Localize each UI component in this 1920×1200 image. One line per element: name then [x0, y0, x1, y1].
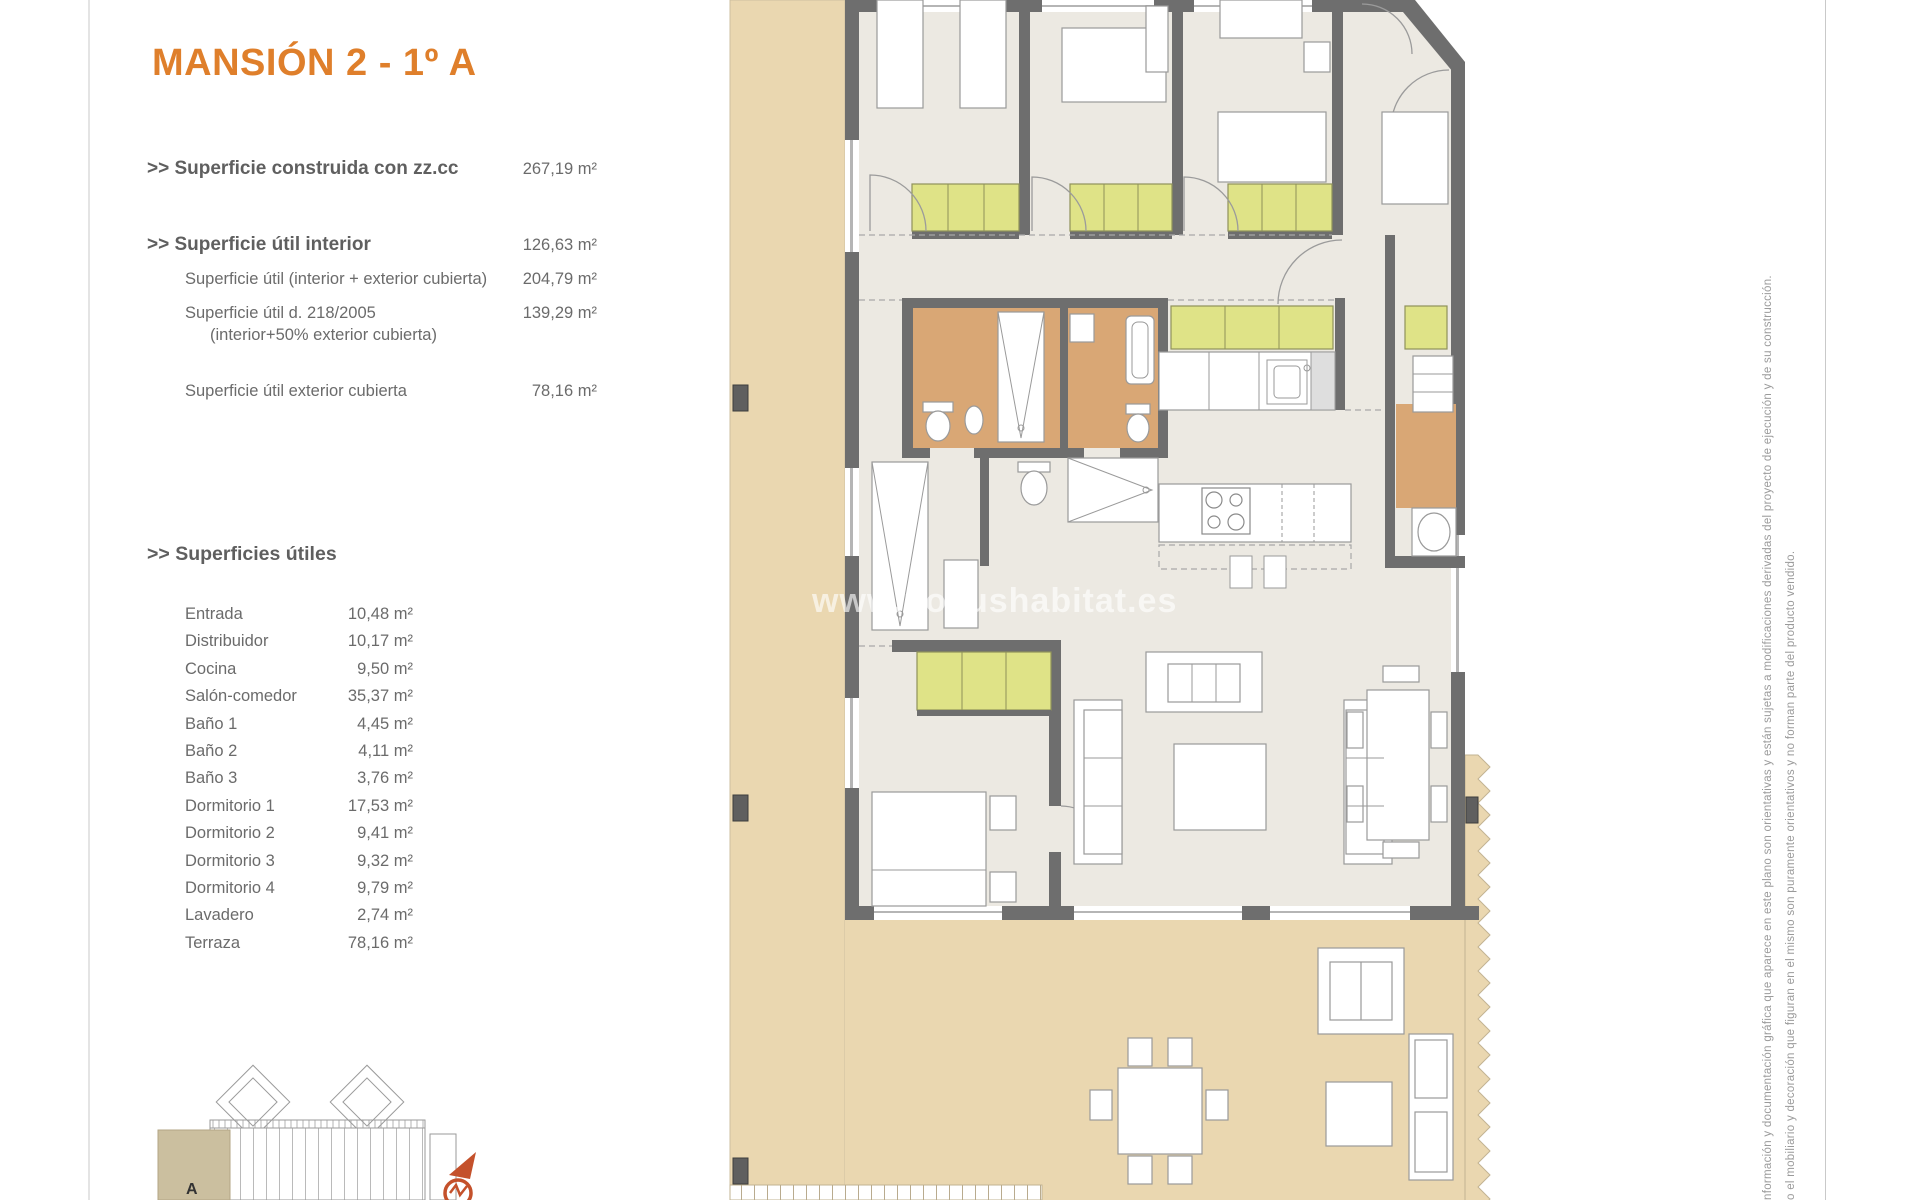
master-bed — [872, 792, 986, 906]
dining-chair — [1347, 786, 1363, 822]
stool — [1230, 556, 1252, 588]
bathtub2 — [1126, 316, 1154, 384]
disclaimer-line1: nformación y documentación gráfica que a… — [1762, 170, 1774, 1200]
master-nightstand2 — [990, 872, 1016, 902]
site-buildings — [210, 1065, 456, 1200]
site-unit-label: A — [186, 1181, 198, 1198]
master-nightstand — [990, 796, 1016, 830]
kitchen-appliance — [1311, 352, 1335, 410]
dining-chair — [1383, 842, 1419, 858]
toilet3 — [1021, 471, 1047, 505]
terrace-chair — [1128, 1156, 1152, 1184]
dining-chair — [1347, 712, 1363, 748]
shower1 — [998, 312, 1044, 442]
dining-chair — [1383, 666, 1419, 682]
disclaimer-line2: o el mobiliario y decoración que figuran… — [1785, 350, 1797, 1200]
stool — [1264, 556, 1286, 588]
bedroom1-bed-right — [960, 0, 1006, 108]
terrace-chair — [1090, 1090, 1112, 1120]
hall-cabinet — [1382, 112, 1448, 204]
terrace-chair — [1168, 1156, 1192, 1184]
toilet2 — [1127, 414, 1149, 442]
kitchen-island — [1159, 484, 1351, 542]
terrace-chair — [1206, 1090, 1228, 1120]
kitchen-counter — [1159, 352, 1335, 410]
bedroom3-nightstand — [1304, 42, 1330, 72]
bedroom1-bed-left — [877, 0, 923, 108]
shower4 — [1068, 458, 1158, 522]
toilet2-tank — [1126, 404, 1150, 414]
laundry-floor — [1396, 404, 1456, 508]
laundry-shelves — [1413, 356, 1453, 412]
bedroom3-bed-top — [1220, 0, 1302, 38]
terrace-seat — [1326, 1082, 1392, 1146]
site-key-plan: A — [0, 0, 600, 1200]
terrace-chair — [1128, 1038, 1152, 1066]
terrace-table — [1118, 1068, 1202, 1154]
bath2-shelf — [1070, 314, 1094, 342]
bedroom2-pillow — [1146, 6, 1168, 72]
terrace-chair — [1168, 1038, 1192, 1066]
dining-chair — [1431, 712, 1447, 748]
watermark: www.novushabitat.es — [812, 582, 1177, 621]
page-right-rule — [1825, 0, 1826, 1200]
dining-table — [1367, 690, 1429, 840]
bidet1 — [965, 406, 983, 434]
washing-machine — [1418, 513, 1450, 551]
coffee-table — [1174, 744, 1266, 830]
dining-chair — [1431, 786, 1447, 822]
bedroom3-bed — [1218, 112, 1326, 182]
tv-unit-inner — [1168, 664, 1240, 702]
toilet1 — [926, 411, 950, 441]
